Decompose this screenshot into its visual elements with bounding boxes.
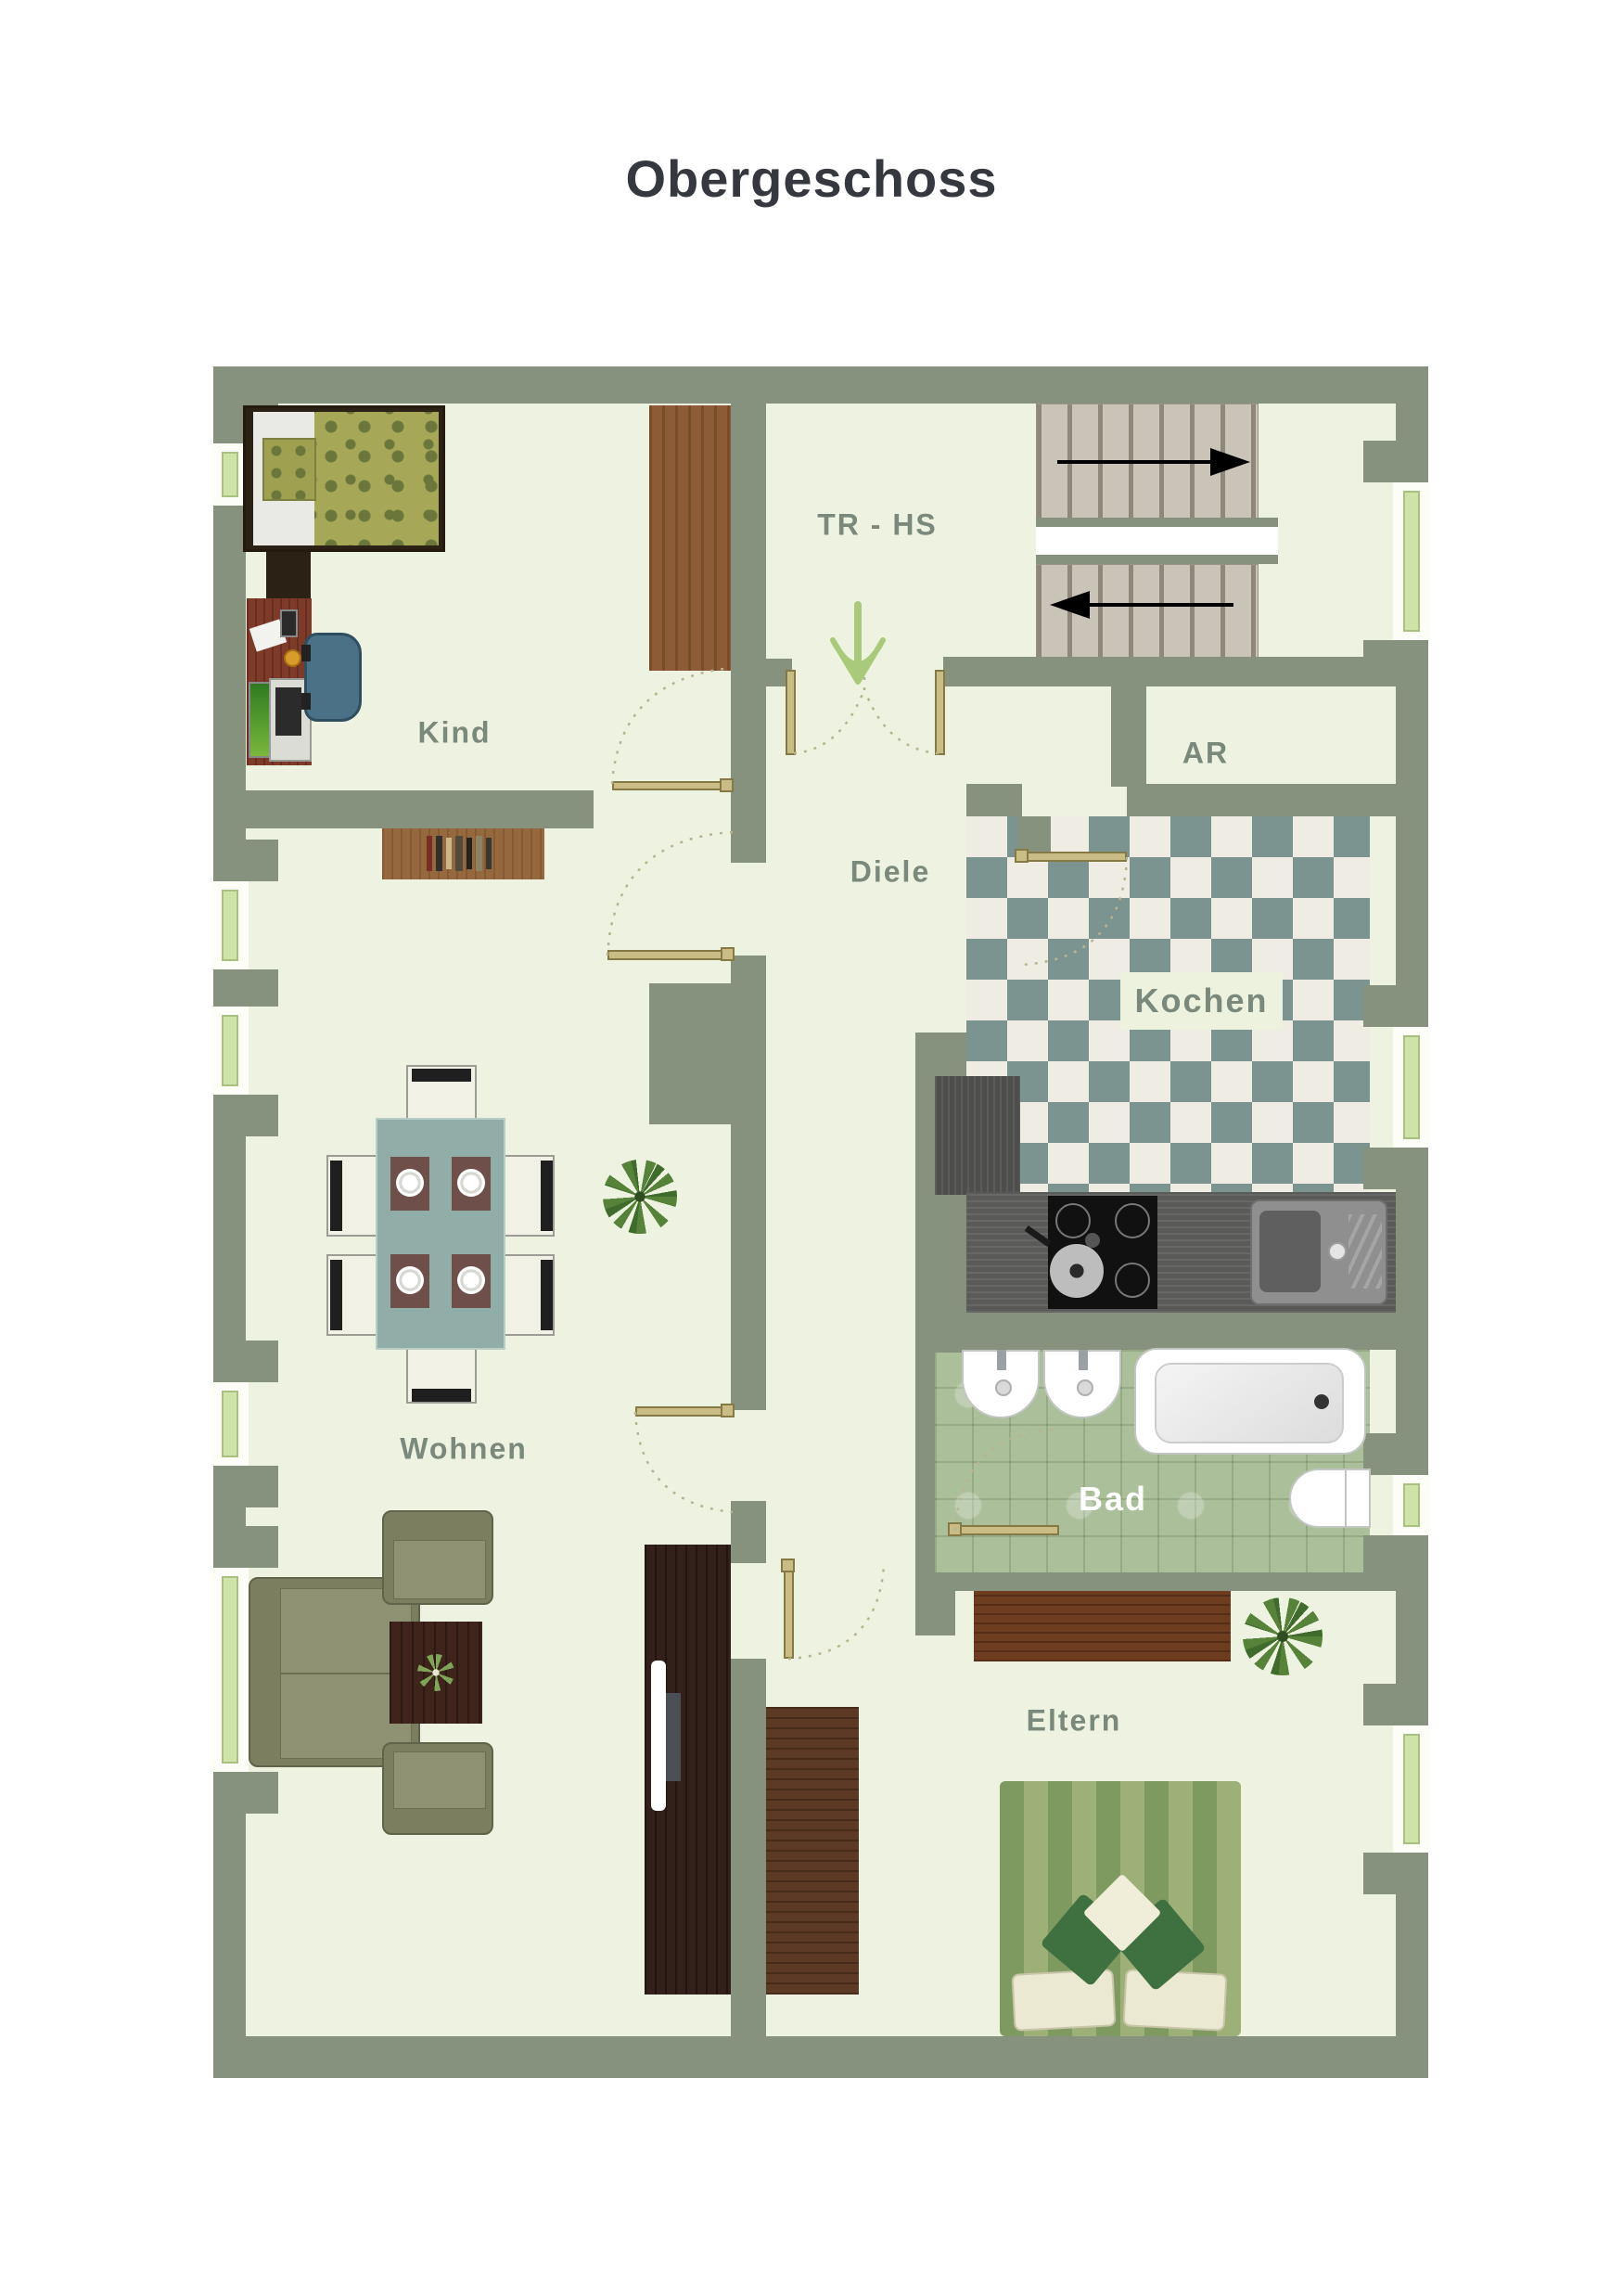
door-swing-arc — [612, 668, 731, 784]
door-swing-arc — [607, 832, 733, 956]
room-label-tr-hs: TR - HS — [817, 508, 938, 543]
door-swing-arc — [788, 1566, 884, 1659]
room-label-ar: AR — [1182, 737, 1229, 771]
room-label-diele: Diele — [850, 855, 930, 890]
entry-door-swing-arc — [794, 694, 863, 753]
entrance-arrow-icon — [833, 605, 883, 682]
floorplan-canvas: Obergeschoss — [0, 0, 1623, 2296]
door-swing-arc — [635, 1412, 733, 1512]
room-label-kind: Kind — [417, 716, 491, 750]
door-swing-arc — [1020, 857, 1127, 965]
stairs-down-arrow-icon — [1050, 591, 1233, 619]
stairs-up-arrow-icon — [1057, 448, 1250, 476]
door-swing-arc — [955, 1429, 1059, 1531]
room-label-wohnen: Wohnen — [400, 1432, 528, 1467]
room-label-bad: Bad — [1079, 1480, 1147, 1519]
entry-door-swing-arc — [866, 694, 939, 753]
room-label-eltern: Eltern — [1027, 1704, 1122, 1738]
annotation-overlay — [0, 0, 1623, 2296]
